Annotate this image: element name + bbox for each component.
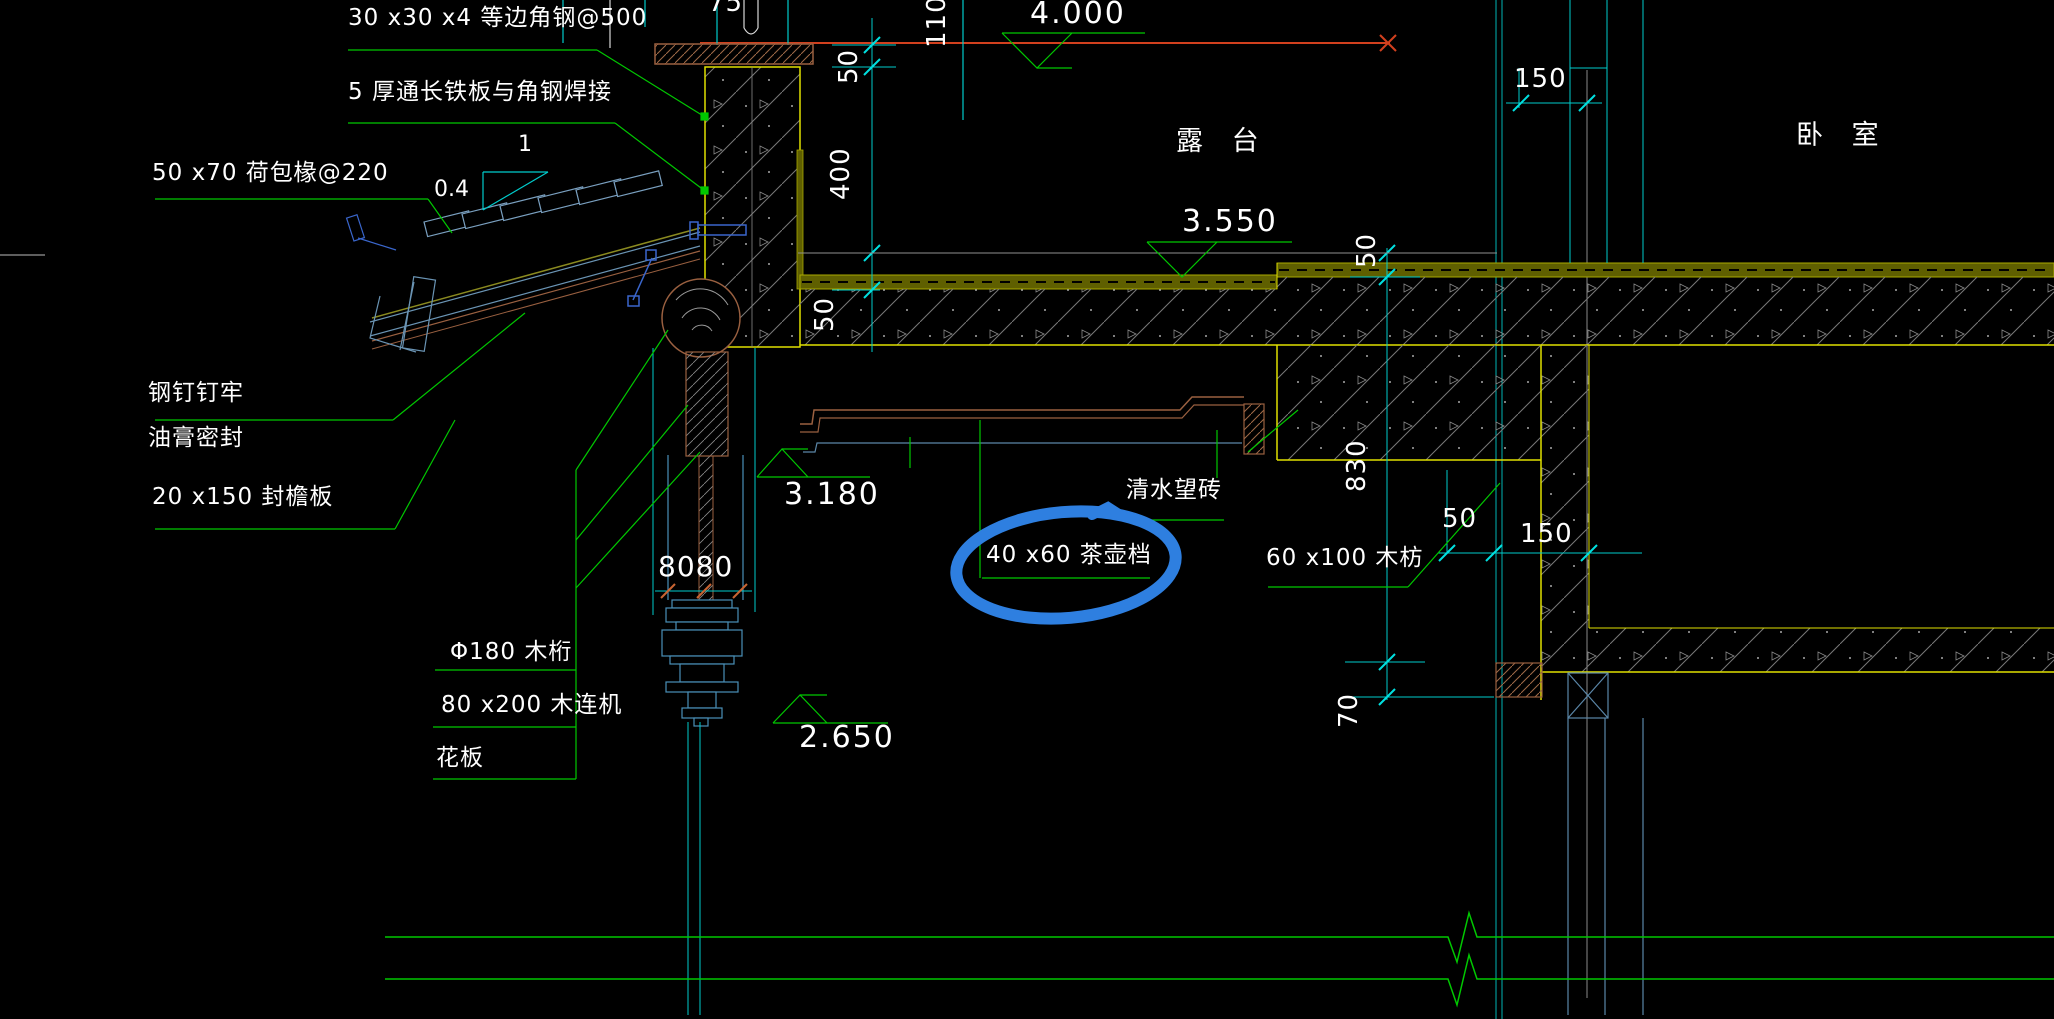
elevation-2650: 2.650 xyxy=(799,722,895,754)
callout-teapot-batten: 40 x60 茶壶档 xyxy=(986,543,1152,567)
callout-fascia-board: 20 x150 封檐板 xyxy=(152,485,333,509)
cad-drawing-canvas[interactable]: 30 x30 x4 等边角钢@500 5 厚通长铁板与角钢焊接 50 x70 荷… xyxy=(0,0,2054,1019)
callout-wood-batten: 60 x100 木枋 xyxy=(1266,546,1423,570)
room-label-bedroom: 卧 室 xyxy=(1796,122,1889,150)
elevation-3180: 3.180 xyxy=(784,479,880,511)
dim-150-bottom: 150 xyxy=(1520,521,1573,548)
room-label-terrace: 露 台 xyxy=(1176,128,1269,156)
dim-50-right: 50 xyxy=(1354,206,1388,268)
dim-110: 110 xyxy=(924,0,958,48)
hanging-post xyxy=(662,352,743,726)
slope-run: 1 xyxy=(518,133,532,156)
log-purlin xyxy=(662,279,740,357)
dim-70: 70 xyxy=(1336,682,1370,728)
section-break-lines xyxy=(385,913,2054,1005)
callout-flower-board: 花板 xyxy=(436,746,484,770)
elevation-3550: 3.550 xyxy=(1182,206,1278,238)
dropped-edge-beam xyxy=(1277,345,1541,460)
callout-iron-plate: 5 厚通长铁板与角钢焊接 xyxy=(348,80,612,104)
coping-section xyxy=(655,44,813,64)
eaves-assembly xyxy=(347,171,700,352)
callout-steel-angle: 30 x30 x4 等边角钢@500 xyxy=(348,6,647,30)
blocking-x-box xyxy=(1568,673,1608,718)
slope-rise: 0.4 xyxy=(434,178,469,201)
callout-brick-layer: 清水望砖 xyxy=(1126,478,1222,502)
ceiling-profile xyxy=(800,397,1264,454)
callout-nail: 钢钉钉牢 xyxy=(148,381,244,405)
dim-50-top: 50 xyxy=(836,38,870,84)
dim-75: 75 xyxy=(708,0,743,17)
wall-wood-piece xyxy=(1496,663,1542,697)
callout-rafter: 50 x70 荷包椽@220 xyxy=(152,161,389,185)
callout-purlin: Φ180 木桁 xyxy=(450,640,572,664)
axis-grid-lines xyxy=(1496,0,1502,1019)
dim-8080: 8080 xyxy=(658,552,733,581)
dim-150-top: 150 xyxy=(1514,66,1567,93)
dim-830: 830 xyxy=(1344,432,1378,492)
callout-sealant: 油膏密封 xyxy=(148,426,244,450)
dim-400: 400 xyxy=(828,118,862,200)
pendant-finial xyxy=(662,600,742,726)
callout-connector: 80 x200 木连机 xyxy=(441,693,622,717)
dim-50-bottom: 50 xyxy=(1442,506,1477,533)
terrace-slab xyxy=(800,263,2054,345)
bolt-at-tiles xyxy=(347,215,396,250)
dim-50-slab: 50 xyxy=(812,286,846,332)
elevation-4000: 4.000 xyxy=(1030,0,1126,30)
right-wall xyxy=(1496,0,2054,1015)
